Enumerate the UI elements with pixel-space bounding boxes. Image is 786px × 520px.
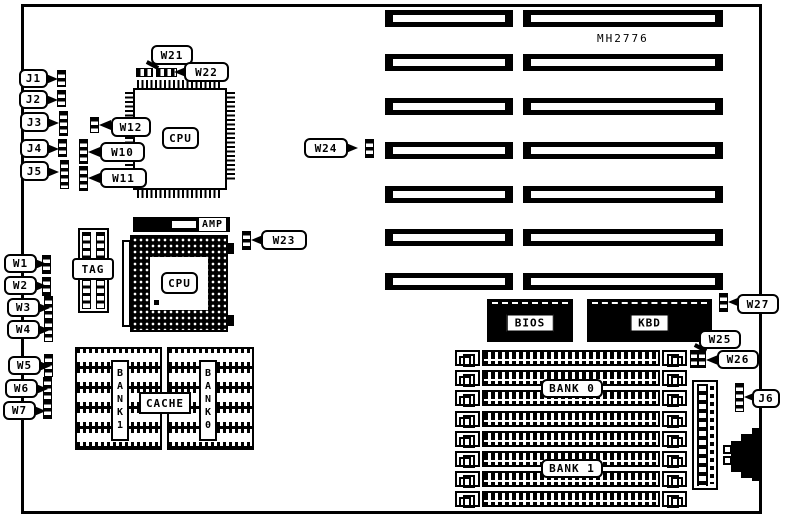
- callout-w6: W6: [5, 379, 38, 398]
- cache-bank1-label: BANK1: [111, 360, 129, 441]
- simm-clip-right: [662, 451, 687, 467]
- jumper-j5: [60, 160, 69, 189]
- power-connector-pins: [697, 384, 708, 486]
- simm-contacts: [482, 491, 660, 507]
- callout-j2: J2: [19, 90, 48, 109]
- callout-w11-pointer: [88, 173, 100, 183]
- keyboard-din-connector: [731, 441, 743, 472]
- cpu-qfp-pins-right: [227, 92, 235, 180]
- jumper-j1: [57, 70, 66, 87]
- callout-w7: W7: [3, 401, 36, 420]
- memory-bank1-label: BANK 1: [541, 459, 603, 478]
- isa-slot-segment: [523, 98, 723, 115]
- callout-j3: J3: [20, 112, 49, 132]
- amp-bar-label: AMP: [199, 218, 226, 231]
- callout-w3: W3: [7, 298, 40, 317]
- callout-w22: W22: [184, 62, 229, 82]
- isa-slot-segment: [523, 54, 723, 71]
- jumper-w11: [79, 166, 88, 191]
- isa-slot-segment: [523, 273, 723, 290]
- isa-slot-segment: [385, 142, 513, 159]
- callout-j4: J4: [20, 139, 49, 158]
- jumper-j2: [57, 90, 66, 107]
- simm-clip-right: [662, 370, 687, 386]
- isa-slot-segment: [523, 142, 723, 159]
- callout-j6: J6: [752, 389, 780, 408]
- simm-clip-right: [662, 390, 687, 406]
- simm-clip-left: [455, 431, 480, 447]
- callout-j5: J5: [20, 161, 49, 181]
- pga-socket-tab: [228, 243, 234, 254]
- isa-slot-segment: [523, 229, 723, 246]
- isa-slot-segment: [523, 10, 723, 27]
- pga-pin1-dot: [154, 300, 159, 305]
- kbd-chip-notch: [592, 302, 707, 304]
- simm-slot: [455, 491, 687, 507]
- jumper-w27: [719, 293, 728, 312]
- jumper-w12: [90, 117, 99, 133]
- pga-socket-tab: [228, 315, 234, 326]
- board-part-number: MH2776: [597, 32, 649, 45]
- simm-clip-right: [662, 431, 687, 447]
- bios-chip-notch: [492, 302, 568, 304]
- isa-slot-segment: [385, 229, 513, 246]
- kbd-label: KBD: [630, 314, 669, 331]
- callout-w1: W1: [4, 254, 37, 273]
- isa-slot-segment: [385, 10, 513, 27]
- simm-clip-left: [455, 491, 480, 507]
- simm-clip-left: [455, 411, 480, 427]
- cache-bank0-label: BANK0: [199, 360, 217, 441]
- jumper-j3: [59, 111, 68, 136]
- memory-bank0-label: BANK 0: [541, 379, 603, 398]
- simm-clip-left: [455, 370, 480, 386]
- keyboard-din-pin: [723, 456, 732, 465]
- callout-w26: W26: [717, 350, 759, 369]
- cpu-qfp-pins-bottom: [137, 190, 221, 198]
- motherboard-diagram: MH2776 CPU W21 W22 W12 W10 W11 J1 J2 J3 …: [0, 0, 786, 520]
- callout-w11: W11: [100, 168, 147, 188]
- callout-w2: W2: [4, 276, 37, 295]
- simm-contacts: [482, 350, 660, 366]
- simm-contacts: [482, 431, 660, 447]
- isa-slot-segment: [523, 186, 723, 203]
- cpu-qfp-label: CPU: [162, 127, 199, 149]
- callout-w10-pointer: [88, 147, 100, 157]
- simm-slot: [455, 350, 687, 366]
- simm-clip-right: [662, 471, 687, 487]
- jumper-w10: [79, 139, 88, 164]
- simm-clip-left: [455, 471, 480, 487]
- cache-label: CACHE: [139, 392, 191, 414]
- cpu-pga-label: CPU: [161, 272, 198, 294]
- simm-clip-left: [455, 451, 480, 467]
- simm-contacts: [482, 411, 660, 427]
- power-connector-pins: [710, 386, 714, 484]
- power-connector: [692, 380, 718, 490]
- callout-w27: W27: [737, 294, 779, 314]
- amp-socket-bar: AMP: [133, 217, 230, 232]
- isa-slot-segment: [385, 54, 513, 71]
- isa-slot-segment: [385, 98, 513, 115]
- simm-clip-right: [662, 491, 687, 507]
- isa-slot-segment: [385, 186, 513, 203]
- jumper-w23: [242, 231, 251, 250]
- jumper-j6: [735, 383, 744, 412]
- callout-w25: W25: [699, 330, 741, 349]
- callout-w10: W10: [100, 142, 145, 162]
- simm-slot: [455, 431, 687, 447]
- tag-label: TAG: [72, 258, 114, 280]
- callout-w24: W24: [304, 138, 348, 158]
- keyboard-din-connector: [741, 434, 755, 478]
- callout-j1: J1: [19, 69, 48, 88]
- callout-w12-pointer: [99, 120, 111, 130]
- callout-w12: W12: [111, 117, 151, 137]
- kbd-chip: KBD: [587, 299, 712, 342]
- simm-clip-right: [662, 350, 687, 366]
- jumper-w24: [365, 139, 374, 158]
- simm-clip-right: [662, 411, 687, 427]
- jumper-w21: [136, 68, 153, 77]
- simm-slot: [455, 411, 687, 427]
- callout-w23: W23: [261, 230, 307, 250]
- callout-w5: W5: [8, 356, 41, 375]
- isa-slot-segment: [385, 273, 513, 290]
- keyboard-din-pin: [723, 445, 732, 454]
- bios-chip: BIOS: [487, 299, 573, 342]
- amp-bar-window: [172, 221, 196, 228]
- callout-w4: W4: [7, 320, 40, 339]
- simm-clip-left: [455, 390, 480, 406]
- simm-clip-left: [455, 350, 480, 366]
- jumper-w25: [690, 350, 698, 368]
- jumper-j4: [58, 139, 67, 157]
- bios-label: BIOS: [507, 314, 554, 331]
